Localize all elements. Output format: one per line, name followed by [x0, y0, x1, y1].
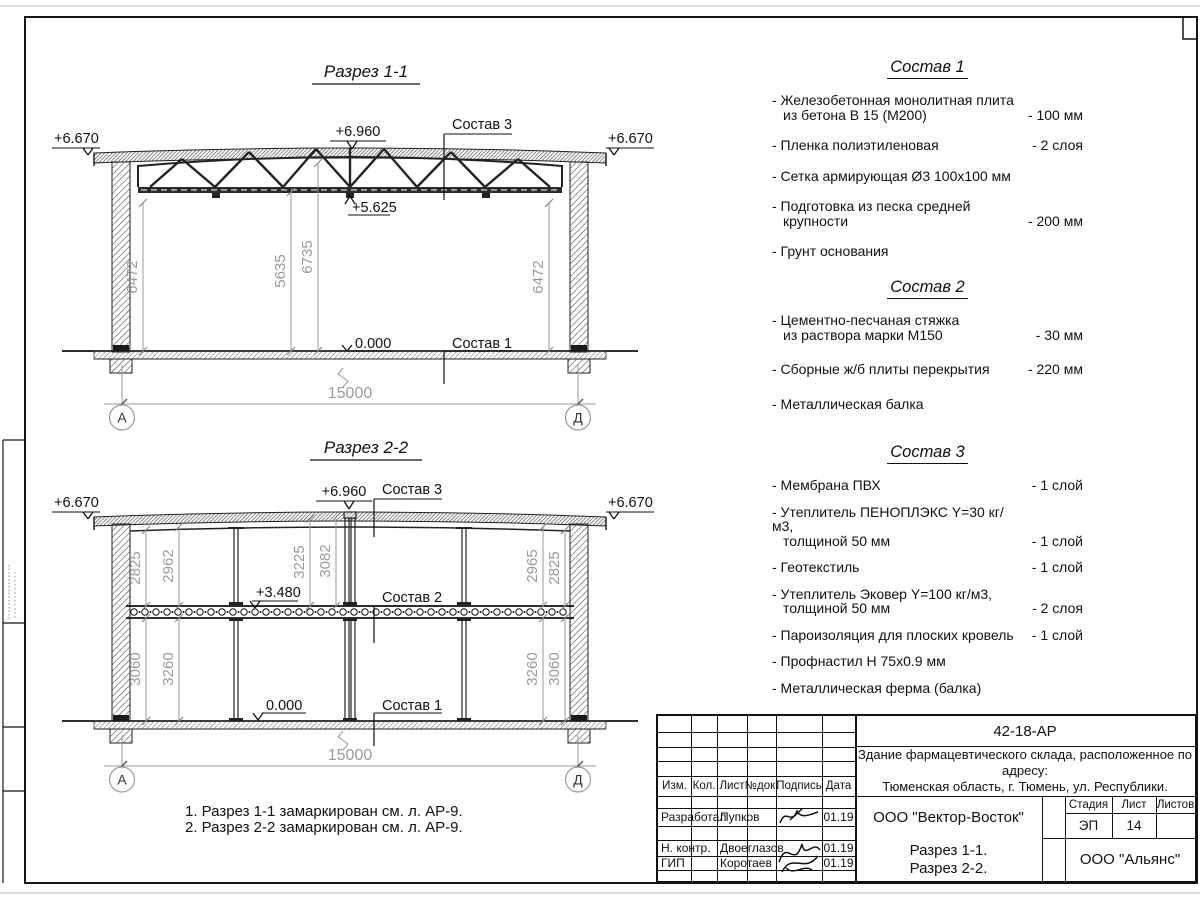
section-2-labels: Разрез 2-2 +6.960 Состав 3 +6.670 +6.670… — [52, 438, 654, 746]
tb-org: ООО "Вектор-Восток" — [855, 796, 1042, 838]
dim-upper-2: 2962 — [160, 549, 177, 582]
corner-stamp-box — [1183, 17, 1197, 39]
left-margin-fields — [3, 440, 25, 883]
composition-item: - Железобетонная монолитная плитаиз бето… — [772, 93, 1083, 122]
dim-height-1: 6472 — [124, 260, 141, 293]
composition-3: Состав 3 - Мембрана ПВХ- 1 слой - Утепли… — [772, 443, 1083, 707]
dim-span: 15000 — [328, 385, 373, 402]
axis-letter-left: А — [117, 772, 127, 788]
dim-lower-2: 3260 — [160, 652, 177, 685]
callout-roof-label: Состав 3 — [382, 482, 442, 498]
dim-lower-3: 3260 — [524, 652, 541, 685]
composition-item: - Цементно-песчаная стяжкаиз раствора ма… — [772, 313, 1083, 342]
tb-col-izm: Изм. — [658, 776, 691, 796]
dim-height-2: 5635 — [272, 254, 289, 287]
dim-height-3: 6735 — [299, 240, 316, 273]
dim-upper-5: 2965 — [524, 549, 541, 582]
section-2-dimensions: 2825 2962 3225 3082 2965 2825 3060 3260 … — [104, 513, 596, 792]
composition-item: - Геотекстиль- 1 слой — [772, 560, 1083, 575]
footing-right — [568, 729, 590, 743]
tb-subject: Разрез 1-1. Разрез 2-2. — [855, 838, 1042, 881]
composition-item: - Сборные ж/б плиты перекрытия- 220 мм — [772, 362, 1083, 377]
footing-right — [568, 359, 590, 373]
tb-role-gip: ГИП — [661, 856, 717, 870]
tb-stage-value: ЭП — [1065, 813, 1112, 838]
section-1-structure — [62, 148, 638, 373]
tb-col-kol: Кол. — [691, 776, 717, 796]
tb-sheet-label: Лист — [1112, 796, 1156, 813]
tb-col-list: Лист — [717, 776, 747, 796]
tb-sheets-value — [1156, 813, 1195, 838]
elev-mid-label: +3.480 — [256, 585, 301, 601]
elev-truss-label: +5.625 — [352, 200, 397, 216]
footing-left — [110, 359, 132, 373]
dim-upper-1: 2825 — [127, 551, 144, 584]
composition-item: - Профнастил Н 75х0.9 мм — [772, 654, 1083, 669]
signature-developer — [776, 804, 822, 829]
section-1-title: Разрез 1-1 — [324, 62, 408, 81]
tb-description: Здание фармацевтического склада, располо… — [855, 746, 1195, 796]
tb-col-data: Дата — [822, 776, 855, 796]
tb-contractor: ООО "Альянс" — [1065, 838, 1195, 881]
composition-item: - Металлическая ферма (балка) — [772, 681, 1083, 696]
tb-name-developer: Пупков — [720, 808, 775, 826]
dim-height-4: 6472 — [530, 260, 547, 293]
elev-left-label: +6.670 — [54, 131, 99, 147]
composition-item: - Подготовка из песка среднейкрупности- … — [772, 199, 1083, 228]
section-1-labels: Разрез 1-1 +6.960 Состав 3 +6.670 +6.670… — [52, 62, 654, 384]
tb-sheet-value: 14 — [1112, 813, 1156, 838]
composition-item: - Сетка армирующая Ø3 100х100 мм — [772, 169, 1083, 184]
dim-upper-6: 2825 — [546, 551, 563, 584]
composition-1: Состав 1 - Железобетонная монолитная пли… — [772, 58, 1083, 275]
axis-letter-right: Д — [573, 410, 583, 426]
tb-date-gip: 01.19 — [822, 856, 855, 870]
tb-date-ncontrol: 01.19 — [822, 840, 855, 856]
composition-1-title: Состав 1 — [772, 58, 1083, 77]
tb-date-developer: 01.19 — [822, 808, 855, 826]
composition-2-title: Состав 2 — [772, 278, 1083, 297]
tb-role-developer: Разработал — [661, 808, 717, 826]
callout-mid-label: Состав 2 — [382, 590, 442, 606]
tb-name-ncontrol: Двоеглазов — [720, 840, 775, 856]
callout-floor-label: Состав 1 — [382, 698, 442, 714]
composition-item: - Мембрана ПВХ- 1 слой — [772, 478, 1083, 493]
composition-2: Состав 2 - Цементно-песчаная стяжкаиз ра… — [772, 278, 1083, 431]
tb-col-ndok: №док. — [747, 776, 776, 796]
composition-item: - Металлическая балка — [772, 397, 1083, 412]
composition-item: - Утеплитель Эковер Y=100 кг/м3,толщиной… — [772, 587, 1083, 616]
elev-floor-label: 0.000 — [355, 336, 391, 352]
note-2: 2. Разрез 2-2 замаркирован см. л. АР-9. — [185, 820, 463, 836]
sheet-notes: 1. Разрез 1-1 замаркирован см. л. АР-9. … — [185, 804, 463, 835]
section-1-dimensions: 6472 5635 6735 6472 15000 А Д — [104, 159, 596, 430]
section-2-structure — [62, 512, 638, 743]
section-2-title: Разрез 2-2 — [324, 438, 409, 457]
callout-floor-label: Состав 1 — [452, 336, 512, 352]
title-block: Изм. Кол. Лист №док. Подпись Дата Разраб… — [656, 714, 1197, 883]
composition-item: - Пароизоляция для плоских кровель- 1 сл… — [772, 628, 1083, 643]
elev-right-label: +6.670 — [608, 131, 653, 147]
wall-left — [112, 162, 130, 352]
dim-upper-3: 3225 — [291, 545, 308, 578]
tb-sheets-label: Листов — [1156, 796, 1195, 813]
dim-lower-1: 3060 — [127, 652, 144, 685]
composition-item: - Грунт основания — [772, 244, 1083, 259]
tb-name-gip: Коротаев — [720, 856, 775, 870]
note-1: 1. Разрез 1-1 замаркирован см. л. АР-9. — [185, 804, 463, 820]
signature-ncontrol-gip — [774, 834, 824, 878]
composition-3-title: Состав 3 — [772, 443, 1083, 462]
elev-ridge-label: +6.960 — [336, 124, 381, 140]
elev-floor-label: 0.000 — [266, 698, 302, 714]
tb-role-ncontrol: Н. контр. — [661, 840, 717, 856]
floor-slab — [94, 721, 606, 729]
dim-span: 15000 — [328, 747, 373, 764]
elev-ridge-label: +6.960 — [322, 484, 367, 500]
tb-col-podpis: Подпись — [776, 776, 822, 796]
dim-upper-4: 3082 — [317, 544, 334, 577]
footing-left — [110, 729, 132, 743]
axis-letter-right: Д — [573, 772, 583, 788]
floor-slab — [94, 351, 606, 359]
axis-letter-left: А — [117, 410, 127, 426]
elev-left-label: +6.670 — [54, 495, 99, 511]
mid-floor-slab — [126, 606, 574, 618]
callout-roof-label: Состав 3 — [452, 117, 512, 133]
elev-right-label: +6.670 — [608, 495, 653, 511]
composition-item: - Пленка полиэтиленовая- 2 слоя — [772, 138, 1083, 153]
wall-right — [570, 524, 588, 721]
wall-right — [570, 162, 588, 352]
tb-stage-label: Стадия — [1065, 796, 1112, 813]
tb-doc-number: 42-18-АР — [855, 716, 1195, 746]
composition-item: - Утеплитель ПЕНОПЛЭКС Y=30 кг/м3,толщин… — [772, 505, 1083, 549]
dim-lower-4: 3060 — [546, 652, 563, 685]
